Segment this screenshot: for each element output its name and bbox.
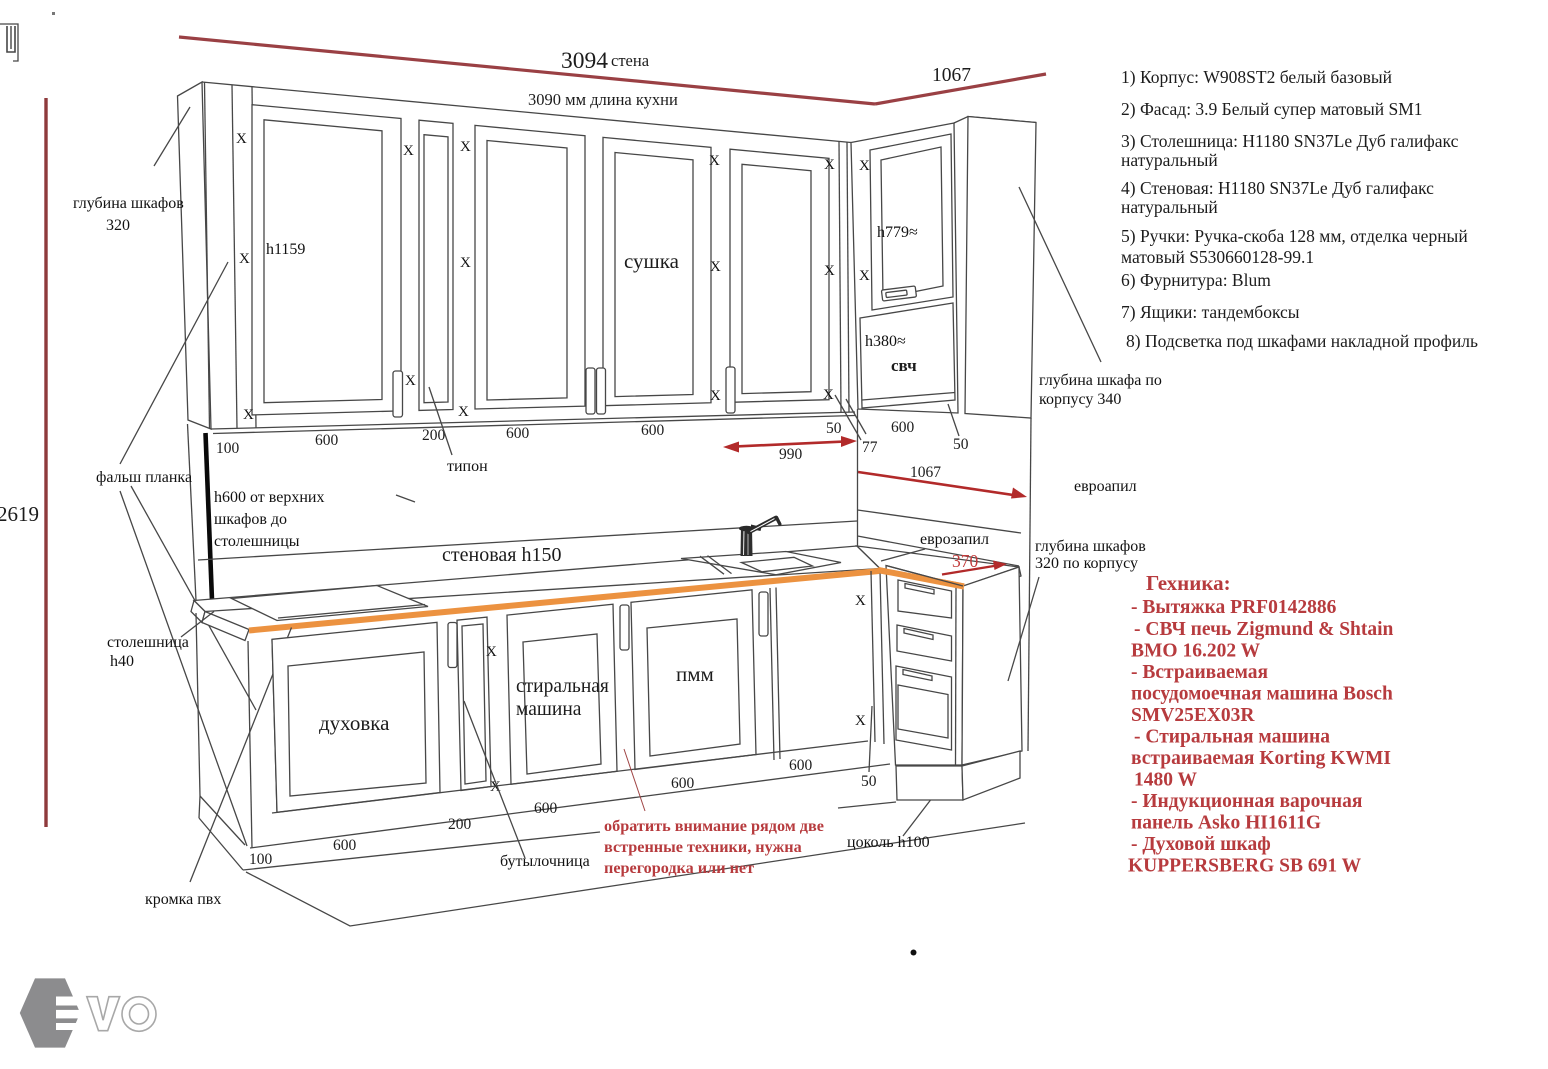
svg-text:1) Корпус: W908ST2 белый базов: 1) Корпус: W908ST2 белый базовый: [1121, 67, 1392, 87]
svg-text:Гехника:: Гехника:: [1146, 571, 1231, 595]
svg-text:евроапил: евроапил: [1074, 478, 1137, 495]
svg-text:X: X: [239, 251, 250, 267]
svg-text:X: X: [859, 158, 870, 174]
svg-text:h779≈: h779≈: [877, 224, 918, 241]
svg-text:5) Ручки: Ручка-скоба 128 мм,: 5) Ручки: Ручка-скоба 128 мм, отделка че…: [1121, 226, 1468, 246]
svg-text:X: X: [403, 143, 414, 159]
svg-text:X: X: [405, 373, 416, 389]
svg-text:200: 200: [422, 427, 446, 444]
svg-text:корпусу 340: корпусу 340: [1039, 391, 1121, 408]
svg-text:X: X: [236, 131, 247, 147]
svg-text:320: 320: [106, 217, 130, 234]
svg-text:4) Стеновая: H1180 SN37Le Дуб: 4) Стеновая: H1180 SN37Le Дуб галифакс: [1121, 178, 1434, 198]
svg-text:50: 50: [826, 420, 842, 437]
svg-text:натуральный: натуральный: [1121, 197, 1218, 217]
svg-text:кромка пвх: кромка пвх: [145, 891, 221, 908]
svg-text:машина: машина: [516, 699, 582, 720]
svg-text:X: X: [859, 268, 870, 284]
svg-text:600: 600: [534, 800, 558, 817]
svg-text:X: X: [824, 157, 835, 173]
svg-text:X: X: [855, 713, 866, 729]
svg-text:X: X: [823, 387, 834, 403]
svg-text:глубина шкафов: глубина шкафов: [1035, 538, 1146, 555]
svg-text:посудомоечная машина Bosch: посудомоечная машина Bosch: [1131, 684, 1393, 705]
svg-text:- Индукционная варочная: - Индукционная варочная: [1131, 791, 1363, 812]
svg-text:h600 от верхних: h600 от верхних: [214, 489, 324, 506]
svg-text:встренные техники, нужна: встренные техники, нужна: [604, 838, 802, 856]
svg-text:600: 600: [315, 432, 339, 449]
svg-text:3) Столешница: H1180 SN37Le Ду: 3) Столешница: H1180 SN37Le Дуб галифакс: [1121, 131, 1459, 151]
svg-text:X: X: [824, 263, 835, 279]
svg-text:h1159: h1159: [266, 241, 305, 258]
svg-text:стеновая h150: стеновая h150: [442, 544, 561, 566]
svg-text:- СВЧ печь Zigmund & Shtain: - СВЧ печь Zigmund & Shtain: [1134, 619, 1394, 640]
svg-text:50: 50: [953, 436, 969, 453]
svg-text:- Вытяжка PRF0142886: - Вытяжка PRF0142886: [1131, 597, 1337, 618]
svg-text:77: 77: [862, 439, 878, 456]
svg-text:стена: стена: [611, 51, 650, 70]
svg-text:фальш планка: фальш планка: [96, 469, 192, 486]
svg-text:еврозапил: еврозапил: [920, 531, 989, 548]
svg-text:X: X: [710, 388, 721, 404]
svg-text:- Встраиваемая: - Встраиваемая: [1131, 662, 1269, 683]
svg-text:бутылочница: бутылочница: [500, 853, 590, 870]
svg-text:X: X: [486, 644, 497, 660]
svg-text:духовка: духовка: [319, 711, 390, 735]
svg-text:X: X: [710, 259, 721, 275]
svg-text:320 по корпусу: 320 по корпусу: [1035, 555, 1138, 572]
svg-text:- Стиральная машина: - Стиральная машина: [1134, 727, 1330, 748]
svg-text:600: 600: [506, 425, 530, 442]
svg-text:KUPPERSBERG SB 691 W: KUPPERSBERG SB 691 W: [1128, 856, 1362, 877]
svg-text:7) Ящики: тандембоксы: 7) Ящики: тандембоксы: [1121, 302, 1300, 322]
svg-text:BMO 16.202 W: BMO 16.202 W: [1131, 641, 1261, 662]
svg-text:600: 600: [891, 419, 915, 436]
svg-text:100: 100: [216, 440, 240, 457]
svg-text:столешница: столешница: [107, 634, 189, 651]
svg-text:- Духовой шкаф: - Духовой шкаф: [1131, 834, 1271, 855]
svg-text:X: X: [855, 593, 866, 609]
svg-text:стиральная: стиральная: [516, 676, 609, 697]
svg-text:3094: 3094: [561, 48, 608, 74]
svg-text:3090 мм длина кухни: 3090 мм длина кухни: [528, 90, 678, 109]
svg-text:2619: 2619: [0, 502, 39, 526]
svg-text:1067: 1067: [910, 464, 941, 481]
svg-text:50: 50: [861, 773, 877, 790]
svg-text:глубина шкафов: глубина шкафов: [73, 195, 184, 212]
svg-text:столешницы: столешницы: [214, 533, 300, 550]
svg-text:глубина шкафа по: глубина шкафа по: [1039, 372, 1162, 389]
svg-text:перегородка или нет: перегородка или нет: [604, 859, 754, 877]
svg-text:600: 600: [333, 837, 357, 854]
svg-text:600: 600: [671, 775, 695, 792]
svg-text:матовый S530660128-99.1: матовый S530660128-99.1: [1121, 247, 1314, 267]
svg-text:свч: свч: [891, 356, 917, 375]
svg-text:X: X: [458, 404, 469, 420]
svg-text:6) Фурнитура: Blum: 6) Фурнитура: Blum: [1121, 270, 1271, 290]
svg-text:h380≈: h380≈: [865, 333, 906, 350]
svg-text:600: 600: [789, 757, 813, 774]
svg-text:200: 200: [448, 816, 472, 833]
svg-text:600: 600: [641, 422, 665, 439]
svg-text:X: X: [460, 255, 471, 271]
svg-text:шкафов до: шкафов до: [214, 511, 287, 528]
svg-text:X: X: [243, 407, 254, 423]
svg-text:пмм: пмм: [676, 662, 714, 686]
svg-text:обратить внимание рядом две: обратить внимание рядом две: [604, 817, 824, 835]
svg-text:SMV25EX03R: SMV25EX03R: [1131, 705, 1255, 726]
svg-text:панель Asko HI1611G: панель Asko HI1611G: [1131, 813, 1321, 834]
svg-text:8) Подсветка под шкафами накла: 8) Подсветка под шкафами накладной профи…: [1126, 331, 1478, 351]
svg-text:h40: h40: [110, 653, 134, 670]
svg-text:X: X: [460, 139, 471, 155]
svg-text:1067: 1067: [932, 65, 971, 86]
svg-text:встраиваемая Korting KWMI: встраиваемая Korting KWMI: [1131, 748, 1391, 769]
svg-text:2) Фасад: 3.9 Белый супер мато: 2) Фасад: 3.9 Белый супер матовый SM1: [1121, 99, 1423, 119]
svg-text:1480 W: 1480 W: [1134, 770, 1198, 791]
svg-text:100: 100: [249, 851, 273, 868]
svg-text:990: 990: [779, 446, 803, 463]
svg-text:типон: типон: [447, 458, 488, 475]
svg-text:натуральный: натуральный: [1121, 150, 1218, 170]
svg-text:сушка: сушка: [624, 249, 680, 273]
svg-text:цоколь h100: цоколь h100: [847, 834, 930, 851]
svg-text:X: X: [709, 153, 720, 169]
